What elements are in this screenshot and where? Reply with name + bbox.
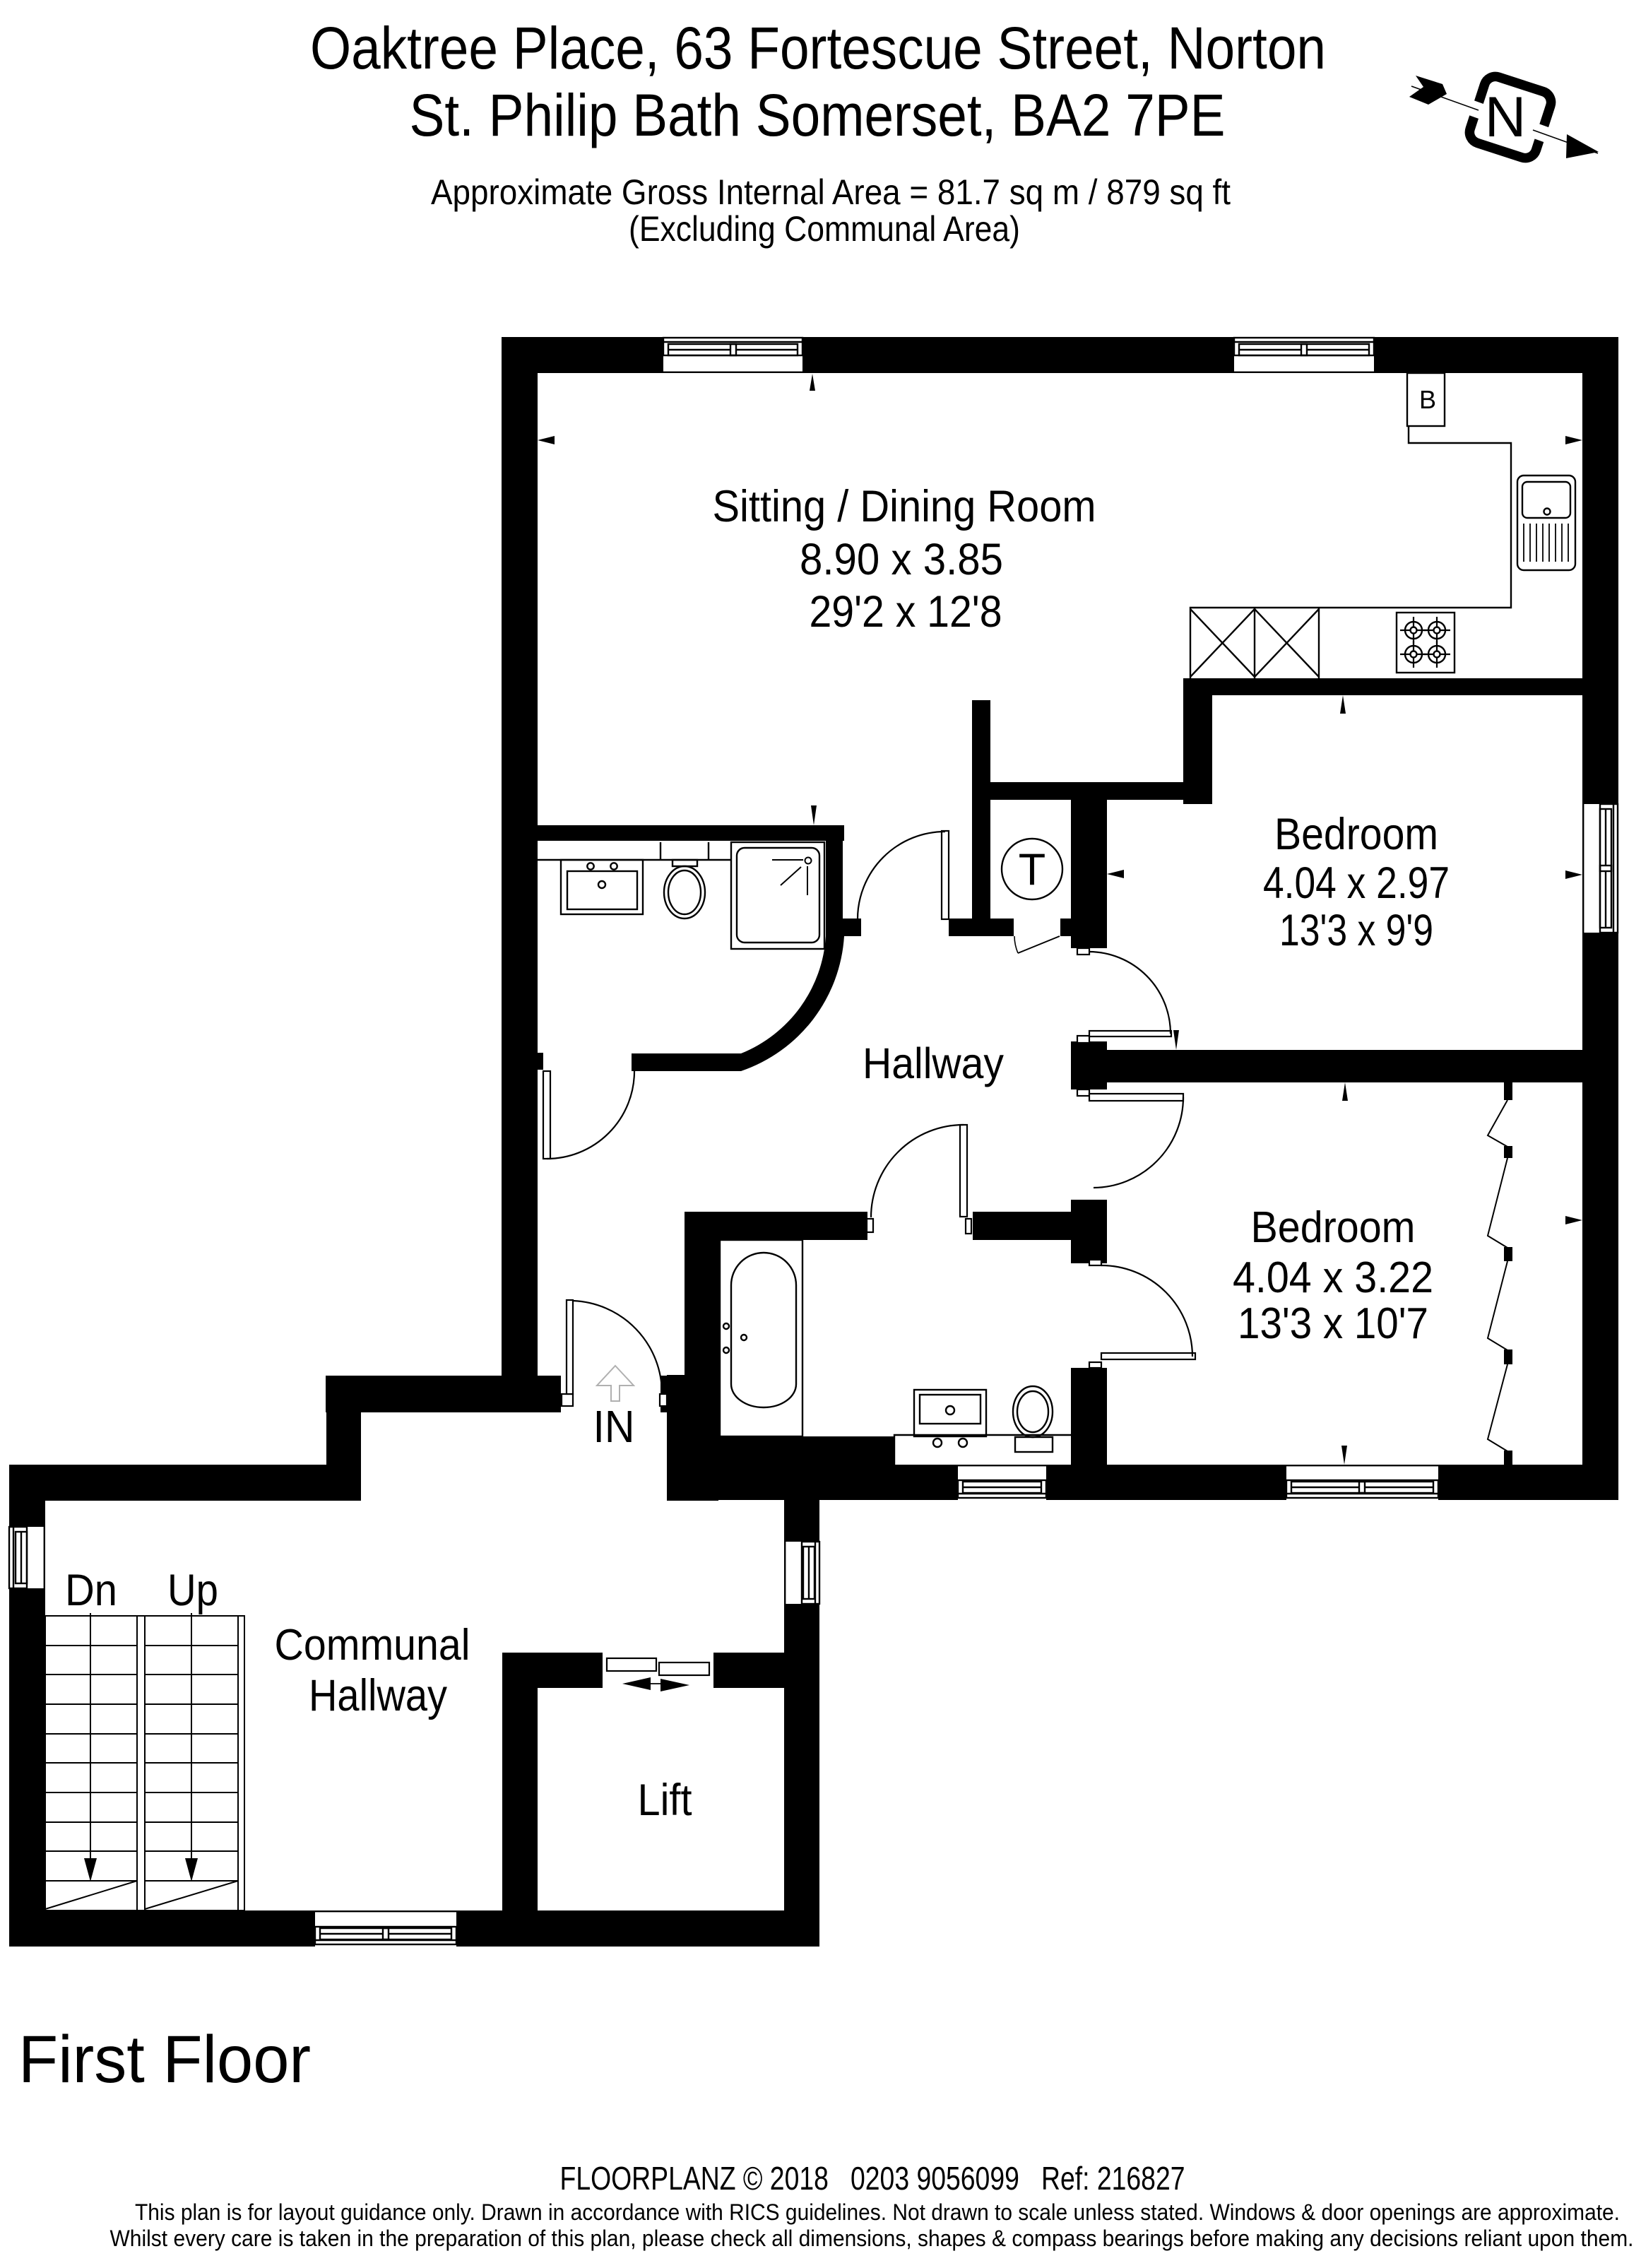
svg-text:Sitting / Dining Room: Sitting / Dining Room bbox=[713, 482, 1096, 531]
svg-text:13'3 x 9'9: 13'3 x 9'9 bbox=[1279, 906, 1433, 955]
svg-text:8.90 x 3.85: 8.90 x 3.85 bbox=[800, 535, 1003, 584]
svg-text:Bedroom: Bedroom bbox=[1251, 1203, 1416, 1252]
svg-text:29'2 x 12'8: 29'2 x 12'8 bbox=[810, 587, 1002, 637]
svg-text:Hallway: Hallway bbox=[309, 1671, 447, 1720]
svg-text:N: N bbox=[1485, 85, 1527, 149]
svg-text:(Excluding Communal Area): (Excluding Communal Area) bbox=[629, 209, 1020, 249]
svg-text:Dn: Dn bbox=[65, 1566, 117, 1615]
svg-text:St. Philip Bath Somerset, BA2: St. Philip Bath Somerset, BA2 7PE bbox=[410, 82, 1226, 148]
svg-text:4.04 x 3.22: 4.04 x 3.22 bbox=[1233, 1253, 1433, 1302]
svg-text:Whilst every care is taken in: Whilst every care is taken in the prepar… bbox=[110, 2226, 1634, 2251]
svg-text:Bedroom: Bedroom bbox=[1274, 810, 1438, 859]
svg-text:IN: IN bbox=[593, 1401, 635, 1452]
svg-text:B: B bbox=[1419, 385, 1436, 414]
svg-text:First Floor: First Floor bbox=[18, 2022, 311, 2097]
svg-text:Lift: Lift bbox=[638, 1776, 692, 1825]
svg-text:T: T bbox=[1019, 845, 1045, 894]
svg-text:Communal: Communal bbox=[275, 1621, 470, 1670]
svg-text:13'3 x 10'7: 13'3 x 10'7 bbox=[1238, 1299, 1428, 1348]
svg-text:Up: Up bbox=[167, 1566, 218, 1615]
svg-text:FLOORPLANZ © 2018 0203 90560: FLOORPLANZ © 2018 0203 9056099 Ref: 2168… bbox=[560, 2160, 1185, 2197]
svg-text:This plan is for layout guidan: This plan is for layout guidance only. D… bbox=[135, 2199, 1620, 2225]
svg-text:Approximate Gross Internal Are: Approximate Gross Internal Area = 81.7 s… bbox=[431, 172, 1231, 212]
svg-text:Oaktree Place, 63 Fortescue St: Oaktree Place, 63 Fortescue Street, Nort… bbox=[310, 15, 1326, 81]
svg-text:Hallway: Hallway bbox=[863, 1039, 1004, 1087]
svg-text:4.04 x 2.97: 4.04 x 2.97 bbox=[1263, 858, 1450, 908]
